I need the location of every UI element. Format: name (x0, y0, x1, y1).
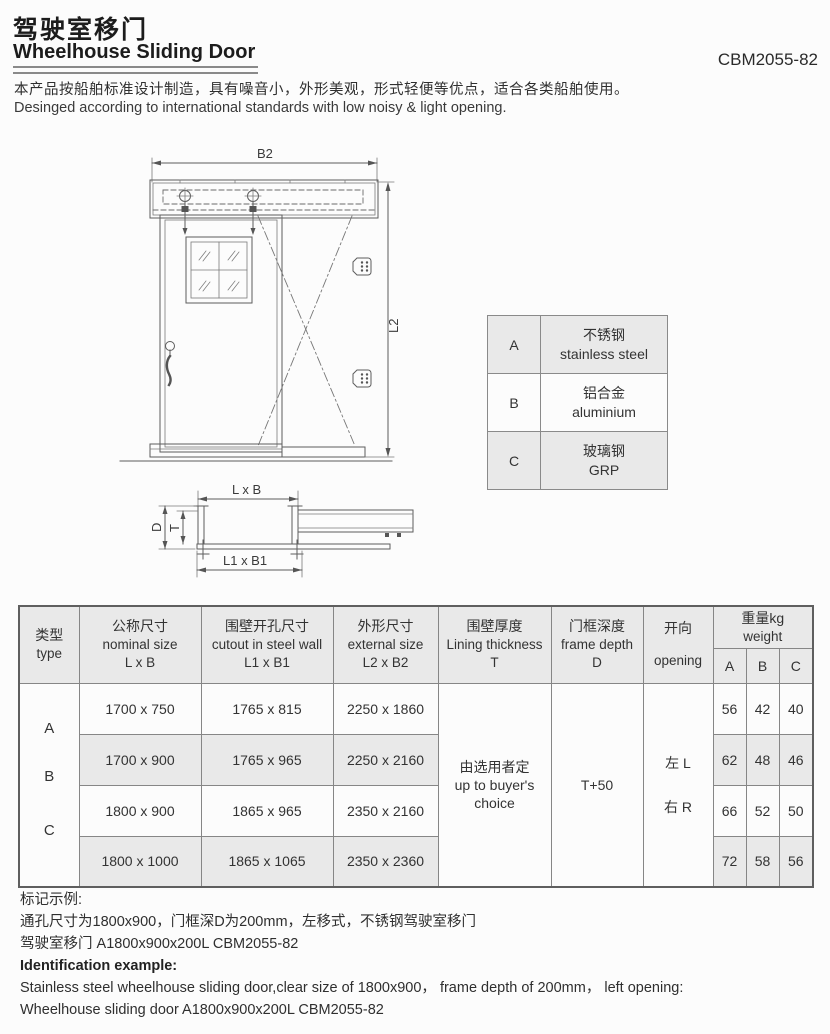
spec-table: 类型 type 公称尺寸 nominal size L x B 围壁开孔尺寸 c… (18, 605, 814, 888)
example-zh-line1: 通孔尺寸为1800x900，门框深D为200mm，左移式，不锈钢驾驶室移门 (20, 915, 683, 930)
header-sub: T (439, 654, 551, 672)
example-zh-heading: 标记示例: (20, 893, 683, 908)
material-value: 铝合金 aluminium (541, 374, 668, 432)
example-en-heading: Identification example: (20, 959, 683, 974)
header-zh: 围壁厚度 (439, 617, 551, 636)
header-sub: L x B (80, 654, 201, 672)
title-double-underline (13, 66, 258, 74)
dim-label-lxb: L x B (232, 482, 261, 497)
keeper-plate-icon (353, 370, 371, 387)
door-handle (166, 342, 175, 386)
weight-c-cell: 50 (779, 785, 813, 836)
example-zh-line2: 驾驶室移门 A1800x900x200L CBM2055-82 (20, 937, 683, 952)
header-zh: 类型 (20, 626, 79, 645)
col-header-external-size: 外形尺寸 external size L2 x B2 (333, 606, 438, 683)
dim-label-d: D (149, 523, 164, 532)
material-key: C (488, 432, 541, 490)
dim-label-l1xb1: L1 x B1 (223, 553, 267, 568)
col-header-frame-depth: 门框深度 frame depth D (551, 606, 643, 683)
header-en: type (20, 645, 79, 663)
example-en-line2: Wheelhouse sliding door A1800x900x200L C… (20, 1003, 683, 1018)
material-en: stainless steel (542, 345, 666, 364)
cutout-cell: 1865 x 965 (201, 785, 333, 836)
col-header-nominal-size: 公称尺寸 nominal size L x B (79, 606, 201, 683)
type-column: A B C (19, 683, 79, 887)
external-size-cell: 2250 x 2160 (333, 734, 438, 785)
hanger-bolt (177, 188, 193, 235)
col-header-lining-thickness: 围壁厚度 Lining thickness T (438, 606, 551, 683)
header-en: Lining thickness (439, 636, 551, 654)
dim-label-b2: B2 (257, 146, 273, 161)
opening-gap (644, 772, 713, 798)
type-letter-c: C (20, 822, 79, 839)
header-sub: D (552, 654, 643, 672)
header-zh: 围壁开孔尺寸 (202, 617, 333, 636)
document-code: CBM2055-82 (718, 50, 818, 70)
material-zh: 玻璃钢 (542, 442, 666, 461)
table-row: A 不锈钢 stainless steel (488, 316, 668, 374)
material-zh: 不锈钢 (542, 326, 666, 345)
weight-a-cell: 72 (713, 836, 746, 887)
lining-en1: up to buyer's (439, 776, 551, 794)
material-value: 玻璃钢 GRP (541, 432, 668, 490)
door-window (186, 237, 252, 303)
header-sub: L2 x B2 (334, 654, 438, 672)
technical-drawing: B2 (85, 140, 425, 600)
col-header-weight: 重量kg weight (713, 606, 813, 648)
weight-c-cell: 46 (779, 734, 813, 785)
material-zh: 铝合金 (542, 384, 666, 403)
cutout-cell: 1765 x 815 (201, 683, 333, 734)
nominal-size-cell: 1700 x 750 (79, 683, 201, 734)
external-size-cell: 2350 x 2360 (333, 836, 438, 887)
nominal-size-cell: 1800 x 900 (79, 785, 201, 836)
cutout-cell: 1765 x 965 (201, 734, 333, 785)
external-size-cell: 2350 x 2160 (333, 785, 438, 836)
col-header-opening: 开向 opening (643, 606, 713, 683)
cutout-cell: 1865 x 1065 (201, 836, 333, 887)
type-letter-b: B (20, 768, 79, 785)
intro-text-zh: 本产品按船舶标准设计制造，具有噪音小，外形美观，形式轻便等优点，适合各类船舶使用… (14, 78, 629, 99)
hanger-bolt (245, 188, 261, 235)
weight-a-cell: 66 (713, 785, 746, 836)
lining-zh: 由选用者定 (439, 758, 551, 776)
material-key: B (488, 374, 541, 432)
lining-thickness-cell: 由选用者定 up to buyer's choice (438, 683, 551, 887)
opening-left: 左 L (644, 754, 713, 772)
section-view: L x B D (149, 482, 413, 577)
col-header-weight-b: B (746, 648, 779, 683)
col-header-weight-a: A (713, 648, 746, 683)
catalog-page: 驾驶室移门 Wheelhouse Sliding Door CBM2055-82… (0, 0, 830, 1034)
header-zh: 重量kg (714, 609, 813, 628)
material-value: 不锈钢 stainless steel (541, 316, 668, 374)
header-en: external size (334, 636, 438, 654)
material-en: aluminium (542, 403, 666, 422)
opening-cell: 左 L 右 R (643, 683, 713, 887)
intro-text-en: Desinged according to international stan… (14, 100, 507, 116)
dim-label-l2: L2 (386, 319, 401, 333)
keeper-plate-icon (353, 258, 371, 275)
table-row: A B C 1700 x 750 1765 x 815 2250 x 1860 … (19, 683, 813, 734)
col-header-weight-c: C (779, 648, 813, 683)
header-row: 类型 type 公称尺寸 nominal size L x B 围壁开孔尺寸 c… (19, 606, 813, 648)
header-zh: 门框深度 (552, 617, 643, 636)
header-zh: 外形尺寸 (334, 617, 438, 636)
weight-c-cell: 56 (779, 836, 813, 887)
header-en: frame depth (552, 636, 643, 654)
weight-b-cell: 58 (746, 836, 779, 887)
header-en: cutout in steel wall (202, 636, 333, 654)
type-letter-a: A (20, 720, 79, 737)
header-zh: 开向 (644, 619, 713, 638)
col-header-cutout: 围壁开孔尺寸 cutout in steel wall L1 x B1 (201, 606, 333, 683)
table-row: C 玻璃钢 GRP (488, 432, 668, 490)
weight-a-cell: 62 (713, 734, 746, 785)
frame-depth-cell: T+50 (551, 683, 643, 887)
material-key: A (488, 316, 541, 374)
external-size-cell: 2250 x 1860 (333, 683, 438, 734)
example-en-line1: Stainless steel wheelhouse sliding door,… (20, 981, 683, 996)
material-table: A 不锈钢 stainless steel B 铝合金 aluminium C … (487, 315, 668, 490)
table-row: B 铝合金 aluminium (488, 374, 668, 432)
header-sub: L1 x B1 (202, 654, 333, 672)
header-en: opening (644, 652, 713, 670)
header-en: nominal size (80, 636, 201, 654)
dim-label-t: T (167, 524, 182, 532)
lining-en2: choice (439, 794, 551, 812)
weight-c-cell: 40 (779, 683, 813, 734)
weight-b-cell: 42 (746, 683, 779, 734)
col-header-type: 类型 type (19, 606, 79, 683)
front-view: B2 (120, 146, 401, 461)
nominal-size-cell: 1700 x 900 (79, 734, 201, 785)
material-en: GRP (542, 461, 666, 480)
identification-example: 标记示例: 通孔尺寸为1800x900，门框深D为200mm，左移式，不锈钢驾驶… (20, 893, 683, 1025)
opening-right: 右 R (644, 798, 713, 816)
nominal-size-cell: 1800 x 1000 (79, 836, 201, 887)
weight-a-cell: 56 (713, 683, 746, 734)
header-en: weight (714, 628, 813, 646)
header-zh: 公称尺寸 (80, 617, 201, 636)
weight-b-cell: 52 (746, 785, 779, 836)
page-title-en: Wheelhouse Sliding Door (13, 41, 255, 64)
weight-b-cell: 48 (746, 734, 779, 785)
